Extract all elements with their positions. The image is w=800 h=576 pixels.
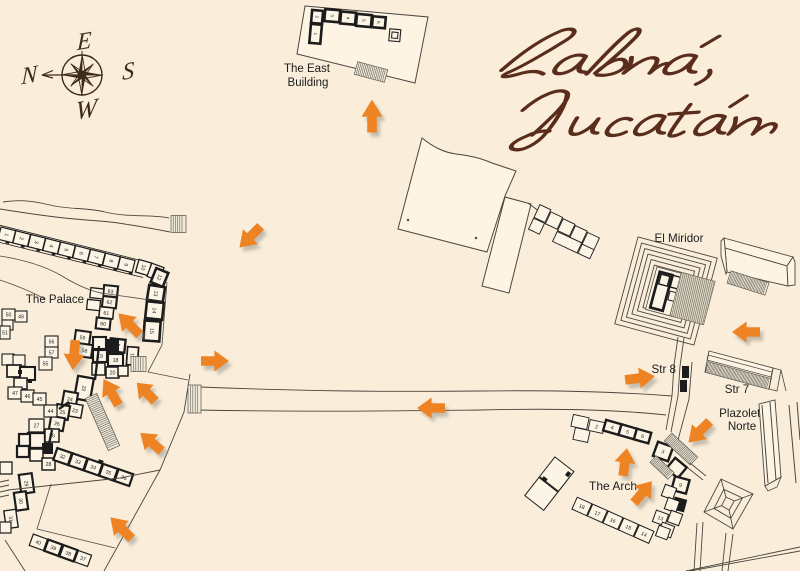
svg-text:61: 61 — [103, 310, 109, 317]
svg-text:28: 28 — [46, 462, 52, 468]
svg-text:Building: Building — [288, 77, 329, 89]
svg-text:The Arch: The Arch — [589, 479, 637, 493]
svg-text:29: 29 — [22, 480, 29, 487]
svg-text:45: 45 — [37, 397, 43, 403]
svg-text:26: 26 — [53, 421, 60, 428]
svg-text:22: 22 — [80, 385, 87, 392]
svg-text:13: 13 — [152, 290, 159, 297]
svg-text:Str 8: Str 8 — [652, 363, 676, 376]
svg-text:20: 20 — [110, 370, 116, 376]
svg-text:Norte: Norte — [728, 420, 756, 433]
svg-text:59: 59 — [79, 335, 86, 342]
svg-text:El Miridor: El Miridor — [655, 232, 704, 245]
svg-text:60: 60 — [100, 321, 106, 328]
svg-text:30: 30 — [17, 498, 24, 505]
svg-text:27: 27 — [34, 423, 40, 429]
svg-text:The Palace: The Palace — [26, 294, 84, 306]
svg-text:55: 55 — [43, 361, 49, 367]
svg-text:47: 47 — [12, 391, 18, 397]
svg-text:W: W — [75, 93, 99, 126]
svg-text:49: 49 — [18, 314, 24, 320]
svg-text:56: 56 — [49, 339, 55, 345]
svg-text:23: 23 — [71, 408, 78, 415]
svg-text:N: N — [20, 60, 39, 91]
svg-text:The East: The East — [284, 63, 331, 75]
svg-text:62: 62 — [106, 300, 112, 307]
svg-text:Str 7: Str 7 — [725, 383, 749, 396]
svg-text:44: 44 — [48, 409, 54, 415]
svg-text:57: 57 — [49, 350, 55, 356]
svg-text:15: 15 — [148, 328, 154, 334]
svg-text:S: S — [122, 57, 135, 86]
svg-text:50: 50 — [6, 312, 12, 318]
svg-text:18: 18 — [113, 358, 119, 364]
svg-text:25: 25 — [59, 409, 66, 416]
svg-text:14: 14 — [150, 307, 157, 313]
svg-text:46: 46 — [25, 394, 31, 400]
svg-text:51: 51 — [2, 330, 8, 336]
svg-text:E: E — [76, 26, 93, 56]
